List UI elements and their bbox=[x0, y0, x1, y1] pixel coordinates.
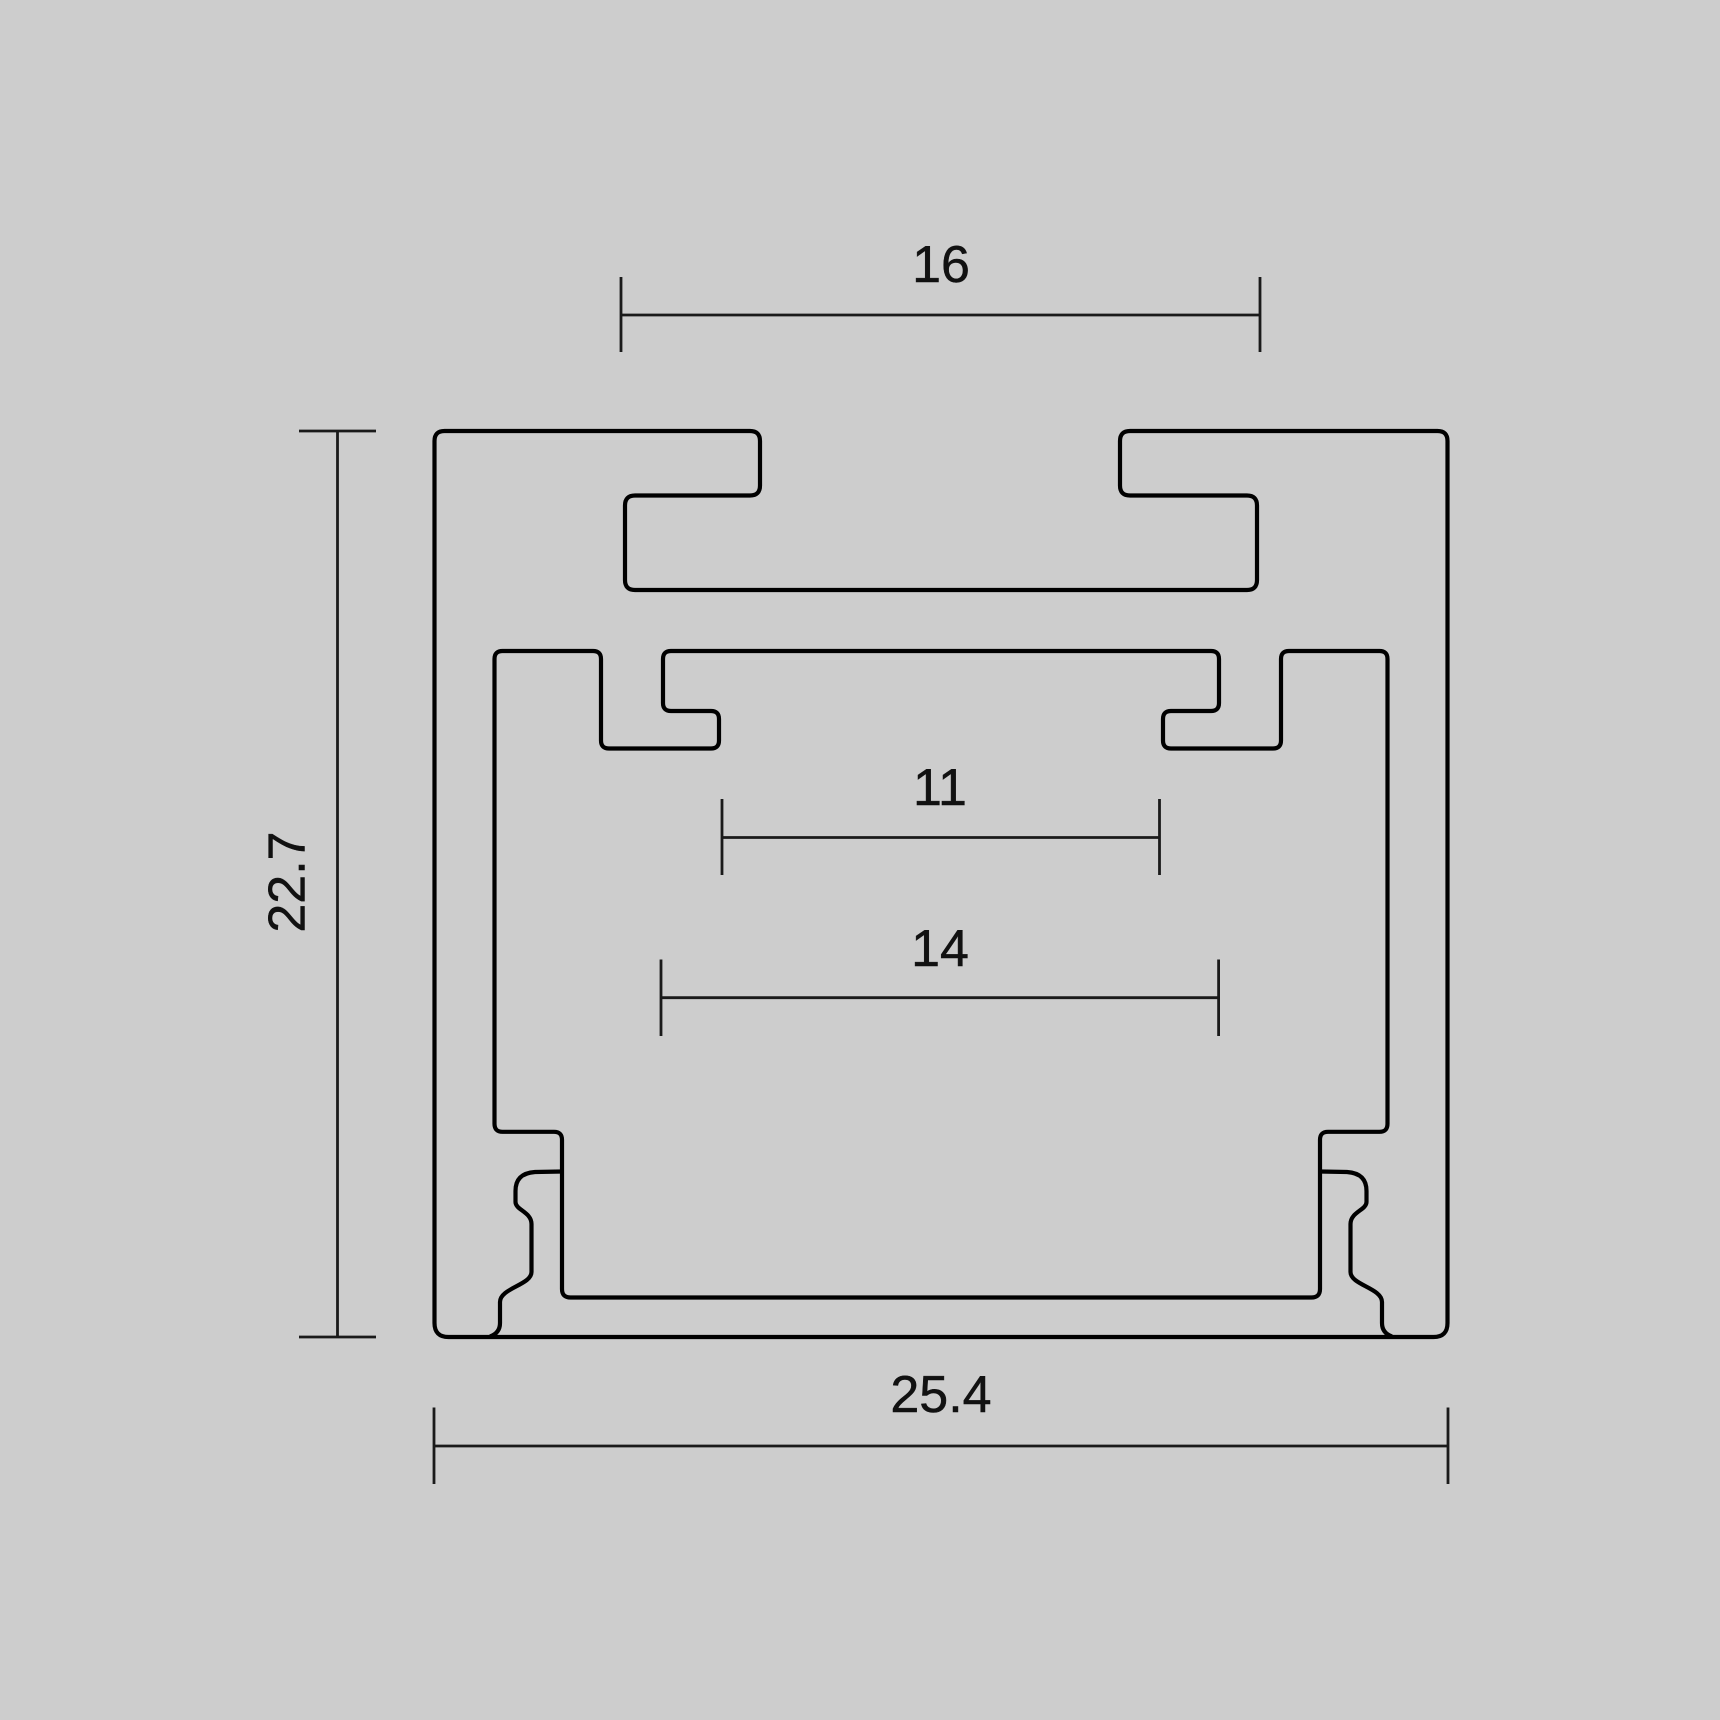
svg-text:16: 16 bbox=[912, 236, 970, 294]
svg-text:22.7: 22.7 bbox=[259, 831, 317, 932]
svg-text:11: 11 bbox=[913, 759, 967, 817]
svg-text:14: 14 bbox=[911, 920, 969, 978]
svg-text:25.4: 25.4 bbox=[890, 1366, 991, 1424]
